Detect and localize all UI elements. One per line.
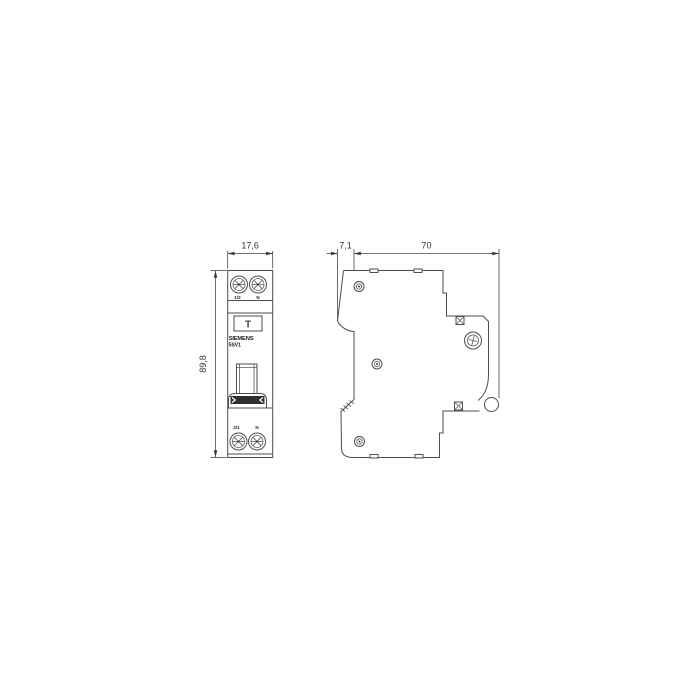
test-button-symbol: T	[245, 320, 251, 331]
screw-terminal-top-right-icon	[250, 276, 267, 293]
rivet-middle-icon	[372, 359, 382, 369]
terminal-opening-bottom-icon	[455, 402, 463, 410]
bottom-terminal-left-label: 2/1	[233, 425, 240, 430]
arrowhead-right-icon	[266, 252, 273, 256]
screw-terminal-top-left-icon	[231, 276, 248, 293]
terminal-opening-top-icon	[456, 317, 464, 325]
body-depth-dimension-label: 70	[421, 241, 431, 251]
height-dimension-label: 89,8	[198, 355, 208, 373]
dimension-width: 17,6	[228, 241, 273, 269]
arrowhead-right-icon	[492, 252, 499, 256]
front-depth-dimension-label: 7,1	[339, 241, 352, 251]
screw-terminal-bottom-left-icon	[230, 433, 247, 450]
toggle-lever	[237, 364, 258, 394]
dimension-height: 89,8	[198, 271, 227, 458]
arrowhead-left-icon	[228, 252, 235, 256]
arrowhead-down-icon	[214, 450, 218, 457]
vent-slot-top-left	[370, 269, 378, 273]
rivet-top-icon	[354, 282, 364, 292]
screw-terminal-bottom-right-icon	[249, 433, 266, 450]
side-view	[338, 269, 499, 458]
brand-label: SIEMENS	[229, 336, 254, 342]
top-terminal-left-label: 1/2	[234, 295, 241, 300]
vent-slot-bottom-right	[415, 455, 423, 459]
dimension-body-depth: 70	[354, 241, 499, 399]
rear-terminal-screw-icon	[465, 332, 482, 349]
vent-slot-top-right	[414, 269, 422, 273]
arrowhead-right-icon	[331, 252, 338, 256]
din-rail-clip-icon	[485, 398, 499, 412]
front-view: 1/2 N T SIEMENS 5SV1 2/1 N	[228, 271, 273, 458]
arrowhead-up-icon	[214, 271, 218, 278]
arrowhead-left-icon	[354, 252, 361, 256]
model-label: 5SV1	[229, 342, 241, 348]
width-dimension-label: 17,6	[241, 241, 259, 251]
vent-slot-bottom-left	[370, 455, 378, 459]
side-outline-lower	[338, 271, 480, 458]
rivet-bottom-icon	[355, 437, 365, 447]
drawing-canvas: 1/2 N T SIEMENS 5SV1 2/1 N	[0, 0, 700, 700]
technical-drawing-svg: 1/2 N T SIEMENS 5SV1 2/1 N	[0, 0, 700, 700]
